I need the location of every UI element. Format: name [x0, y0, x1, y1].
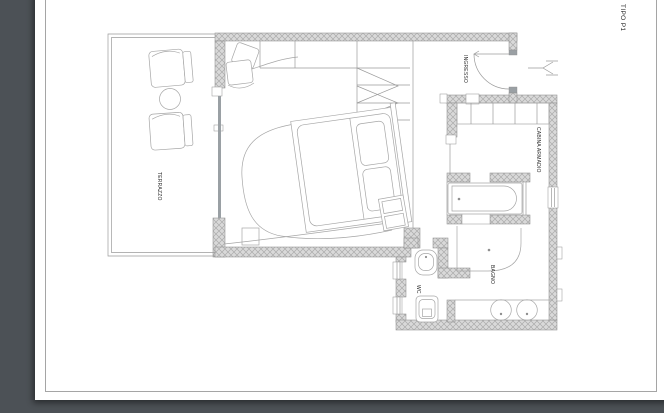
- entrance: [474, 51, 558, 89]
- pouf: [242, 228, 259, 245]
- sink: [491, 300, 512, 321]
- bathtub: [448, 182, 526, 215]
- bench: [378, 195, 408, 231]
- door-swing-arc: [474, 54, 509, 89]
- label-cabina-armadio: CABINA ARMADIO: [535, 127, 541, 173]
- viewer-canvas: { "drawing": { "title": "TIPO P1", "room…: [0, 0, 664, 413]
- shower: [457, 226, 521, 271]
- terrace: [108, 34, 215, 256]
- bidet: [415, 250, 437, 275]
- label-ingresso: INGRESSO: [462, 55, 468, 83]
- label-wc: WC: [415, 285, 421, 294]
- lounge-chair-1: [149, 48, 194, 88]
- corridor-arrow-icon: [528, 61, 558, 75]
- vanity: [455, 300, 553, 321]
- sink: [517, 300, 538, 321]
- bathroom: [448, 182, 553, 320]
- armchair: [226, 42, 260, 88]
- glass-wall: [218, 96, 221, 218]
- label-bagno: BAGNO: [489, 265, 495, 284]
- bedroom: [218, 41, 413, 245]
- terrace-table: [160, 89, 181, 110]
- lounge-chair-2: [149, 112, 193, 151]
- label-terrazzo: TERRAZZO: [156, 172, 162, 201]
- toilet: [416, 296, 438, 322]
- floor-plan: TERRAZZO INGRESSO CABINA ARMADIO BAGNO W…: [0, 0, 664, 413]
